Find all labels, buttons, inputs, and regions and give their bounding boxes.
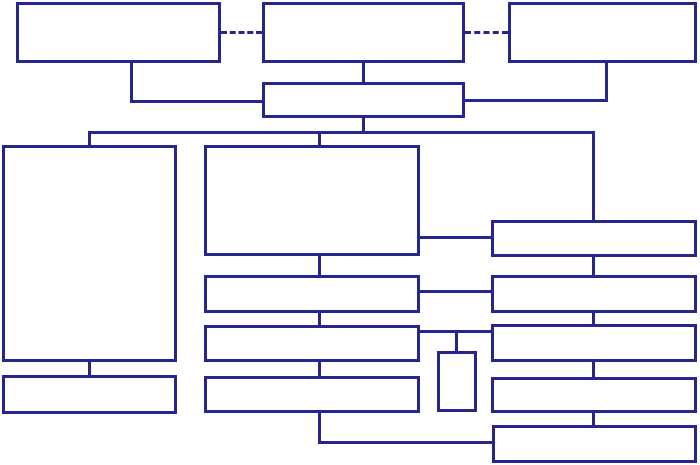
node-left-bottom — [2, 375, 177, 414]
connector-topright-to-hub — [465, 99, 608, 102]
connector-topmiddle-to-hub — [362, 63, 365, 82]
node-top-middle — [262, 2, 465, 63]
connector-midrow2-to-rightrow2 — [420, 290, 491, 293]
connector-bus-drop-middle — [318, 131, 321, 145]
node-mid-row-4 — [204, 376, 420, 413]
connector-midrow4-to-rightrow5 — [318, 441, 492, 444]
connector-midlarge-to-midrow2 — [318, 256, 321, 275]
connector-bus-drop-right — [592, 131, 595, 220]
connector-branch-to-smallbox — [455, 330, 458, 351]
connector-dash-topleft-topmiddle — [221, 31, 262, 34]
connector-midrow4-drop — [318, 413, 321, 444]
connector-lefttall-to-leftbottom — [88, 362, 91, 375]
node-right-row-3 — [491, 324, 697, 362]
node-top-left — [16, 2, 221, 63]
node-level2-hub — [262, 82, 465, 118]
node-small-vertical — [437, 351, 477, 412]
connector-topleft-drop — [130, 63, 133, 103]
connector-midrow2-to-midrow3 — [318, 313, 321, 325]
connector-dash-topmiddle-topright — [465, 31, 508, 34]
node-left-tall — [2, 145, 177, 362]
connector-topleft-to-hub — [130, 100, 262, 103]
node-right-row-2 — [491, 275, 697, 313]
node-right-row-4 — [491, 377, 697, 413]
node-mid-row-2 — [204, 275, 420, 313]
node-right-row-5 — [492, 425, 697, 463]
connector-rightrow2-to-rightrow3 — [592, 313, 595, 324]
diagram-canvas — [0, 0, 700, 465]
connector-rightrow1-to-rightrow2 — [592, 257, 595, 275]
connector-topright-drop — [605, 63, 608, 102]
connector-rightrow4-to-rightrow5 — [592, 413, 595, 425]
connector-rightrow3-to-rightrow4 — [592, 362, 595, 377]
node-mid-row-3 — [204, 325, 420, 362]
node-mid-large — [204, 145, 420, 256]
connector-bus — [88, 131, 595, 134]
node-right-row-1 — [491, 220, 697, 257]
connector-midrow3-to-midrow4 — [318, 362, 321, 376]
node-top-right — [508, 2, 697, 63]
connector-midlarge-to-rightrow1 — [420, 236, 491, 239]
connector-bus-drop-left — [88, 131, 91, 145]
